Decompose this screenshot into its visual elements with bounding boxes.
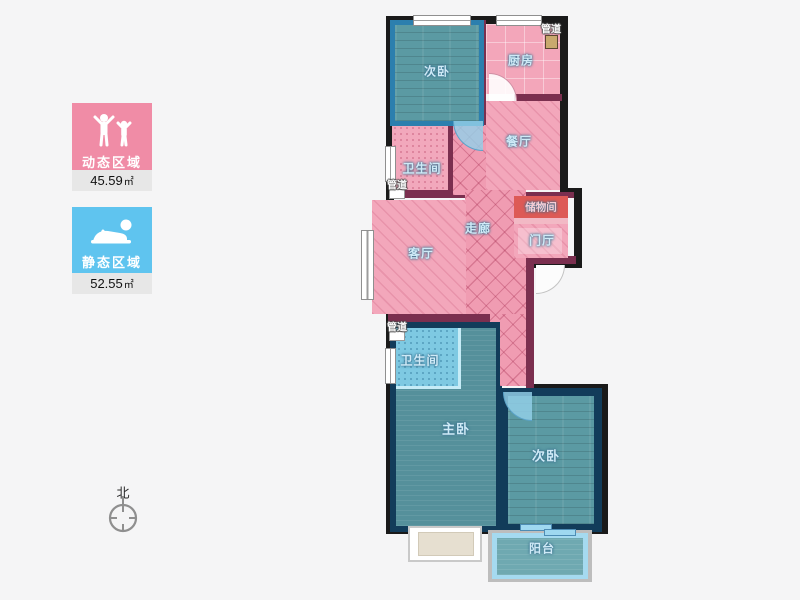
room-label-dining: 餐厅	[506, 133, 532, 150]
room-label-foyer: 门厅	[529, 232, 555, 249]
room-label-living: 客厅	[408, 245, 434, 262]
wall	[526, 262, 534, 388]
room-label-storage: 储物间	[525, 200, 557, 215]
floor-plan: 次卧 厨房 餐厅 卫生间 走廊 客厅 储物间 门厅 卫生间 主卧 次卧 阳台 管…	[0, 0, 800, 600]
window	[413, 15, 471, 26]
pipe-label-top: 管道	[541, 21, 561, 36]
room-label-corridor: 走廊	[465, 220, 491, 237]
room-label-bath-bottom: 卫生间	[400, 352, 439, 369]
room-label-bedroom-bottom: 次卧	[532, 446, 560, 465]
room-label-master: 主卧	[442, 419, 470, 438]
pipe-shaft	[545, 35, 558, 49]
pipe-label-mid: 管道	[387, 177, 407, 192]
bay-window-sill	[418, 532, 474, 556]
room-label-bedroom-top: 次卧	[424, 63, 450, 80]
room-label-kitchen: 厨房	[508, 52, 534, 69]
door-arc	[536, 265, 565, 294]
room-label-balcony: 阳台	[529, 540, 555, 557]
wall	[514, 94, 562, 101]
window	[385, 348, 396, 384]
window	[496, 15, 542, 26]
room-label-bath-top: 卫生间	[402, 160, 441, 177]
pipe-label-bottom: 管道	[387, 319, 407, 334]
sliding-door	[544, 529, 576, 536]
window	[361, 230, 374, 300]
wall	[560, 16, 568, 198]
page: { "legend": { "dynamic": { "label": "动态区…	[0, 0, 800, 600]
room-corridor	[500, 314, 526, 386]
